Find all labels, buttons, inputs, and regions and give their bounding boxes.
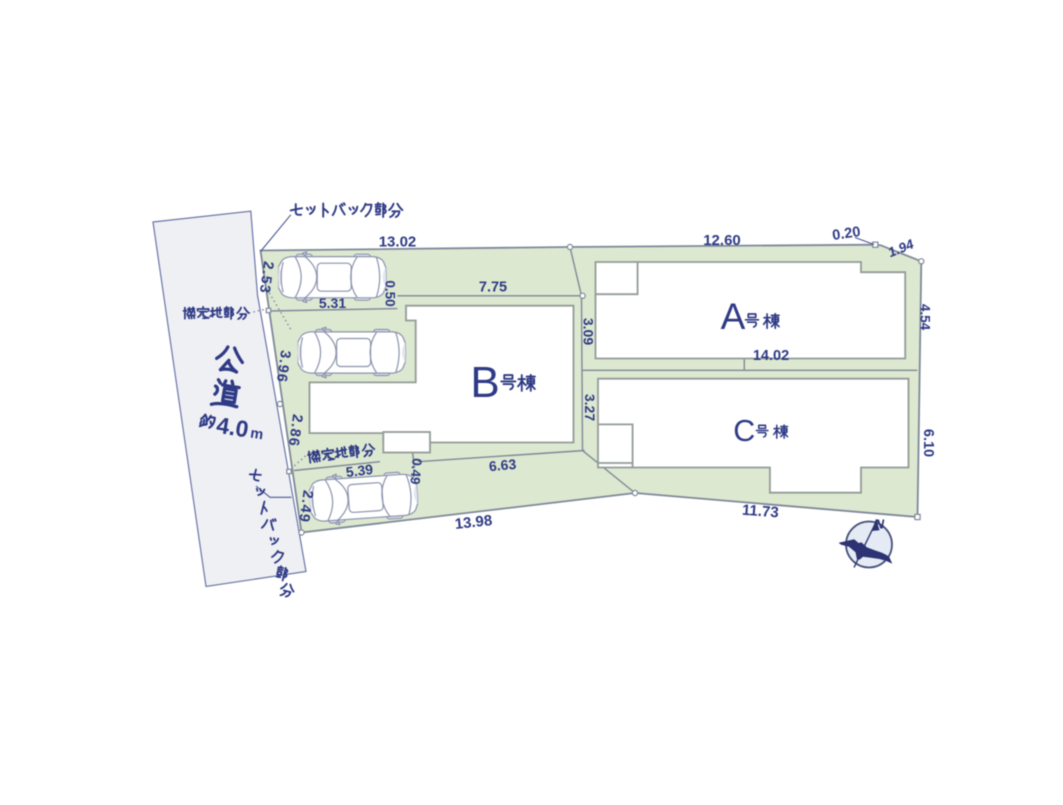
svg-text:6.63: 6.63: [488, 456, 517, 474]
svg-text:5.39: 5.39: [345, 461, 374, 480]
svg-text:0.50: 0.50: [383, 280, 398, 306]
svg-text:C: C: [733, 414, 755, 448]
svg-text:m: m: [249, 426, 264, 444]
svg-text:6.10: 6.10: [920, 429, 936, 457]
svg-text:12.60: 12.60: [703, 232, 741, 249]
svg-text:0.49: 0.49: [407, 458, 424, 485]
svg-text:B: B: [470, 358, 499, 407]
svg-text:11.73: 11.73: [741, 502, 779, 522]
svg-text:5.31: 5.31: [319, 295, 346, 311]
svg-text:3.27: 3.27: [582, 394, 598, 421]
svg-text:N: N: [875, 517, 885, 532]
svg-text:4.54: 4.54: [918, 304, 933, 331]
svg-text:13.02: 13.02: [379, 234, 417, 251]
svg-text:A: A: [721, 296, 746, 337]
svg-text:14.02: 14.02: [753, 348, 789, 364]
svg-text:4.0: 4.0: [215, 412, 251, 443]
svg-text:7.75: 7.75: [479, 280, 507, 296]
svg-text:3.09: 3.09: [581, 318, 597, 345]
